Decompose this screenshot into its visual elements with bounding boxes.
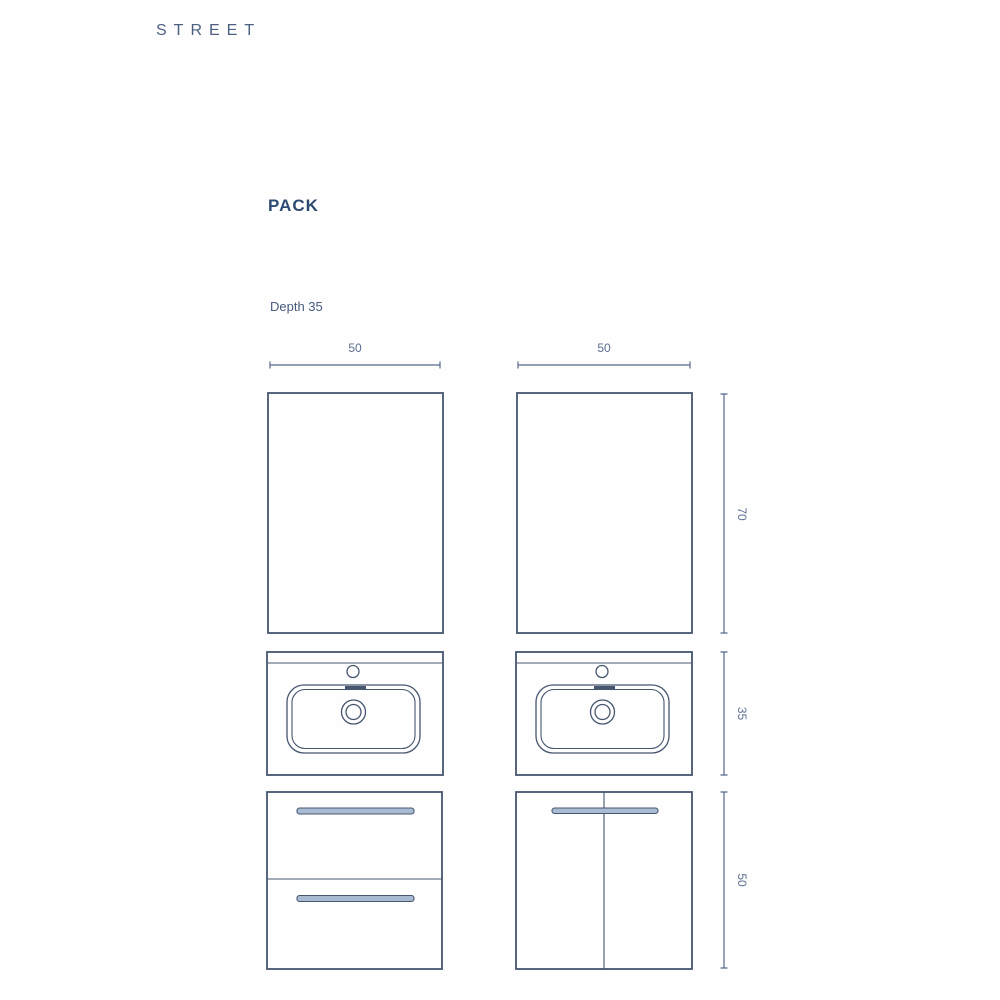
door-handle <box>552 808 658 814</box>
left-width-dimension: 50 <box>270 341 440 369</box>
washbasin-left-tap-hole <box>347 666 359 678</box>
drawer-unit-body <box>267 792 442 969</box>
left-width-dimension-label: 50 <box>348 341 362 355</box>
door-cabinet <box>516 792 692 969</box>
drawer-handle-bottom <box>297 896 414 902</box>
mirror-right <box>517 393 692 633</box>
right-width-dimension: 50 <box>518 341 690 369</box>
cabinet-height-dimension: 50 <box>721 792 750 968</box>
washbasin-left <box>267 652 443 775</box>
washbasin-left-drain-inner <box>346 705 361 720</box>
technical-drawing: 50 50 <box>0 0 1000 1000</box>
mirror-left <box>268 393 443 633</box>
drawer-handle-top <box>297 808 414 814</box>
washbasin-right-drain-inner <box>595 705 610 720</box>
washbasin-right-drain-outer <box>591 700 615 724</box>
washbasin-height-dimension-label: 35 <box>735 707 749 721</box>
washbasin-right <box>516 652 692 775</box>
mirror-height-dimension-label: 70 <box>735 507 749 521</box>
washbasin-left-body <box>267 652 443 775</box>
drawer-unit <box>267 792 442 969</box>
washbasin-left-drain-outer <box>342 700 366 724</box>
washbasin-right-body <box>516 652 692 775</box>
cabinet-height-dimension-label: 50 <box>735 873 749 887</box>
washbasin-height-dimension: 35 <box>721 652 750 775</box>
mirror-height-dimension: 70 <box>721 394 750 633</box>
washbasin-right-tap-hole <box>596 666 608 678</box>
right-width-dimension-label: 50 <box>597 341 611 355</box>
